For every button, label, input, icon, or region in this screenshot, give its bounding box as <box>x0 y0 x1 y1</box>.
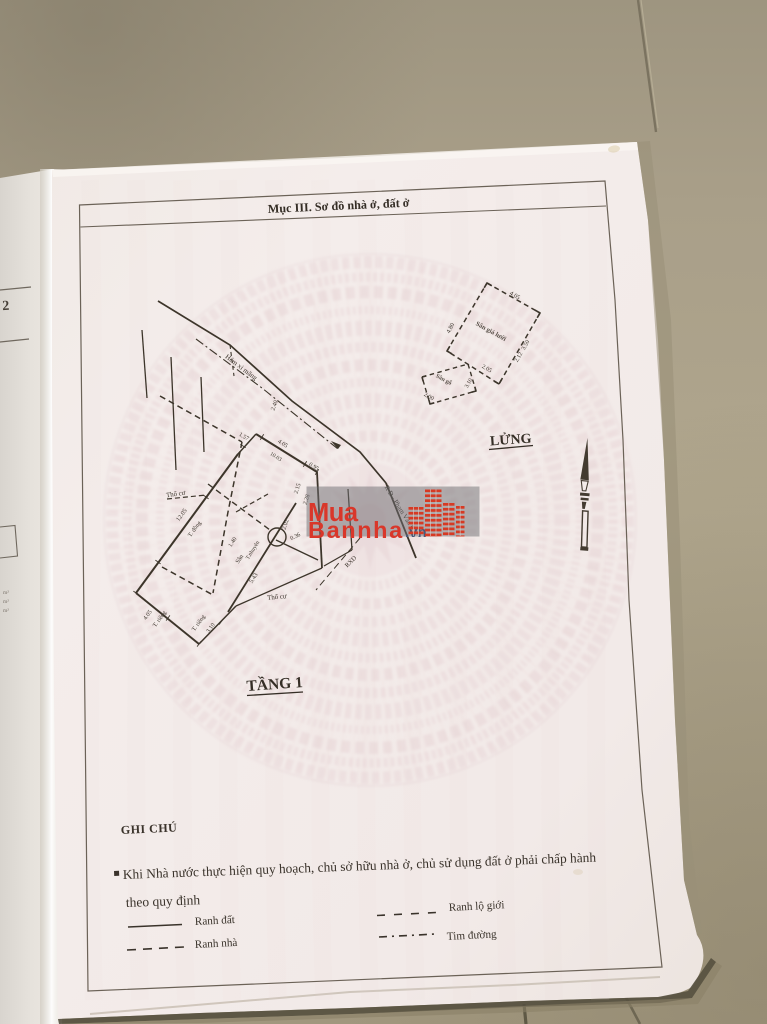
svg-text:Bannha: Bannha <box>308 517 404 543</box>
svg-text:Ranh nhà: Ranh nhà <box>195 937 238 951</box>
svg-text:Tim đường: Tim đường <box>447 928 498 943</box>
svg-text:GHI CHÚ: GHI CHÚ <box>121 820 178 837</box>
svg-text:m²: m² <box>3 590 9 596</box>
svg-text:theo quy định: theo quy định <box>126 892 201 910</box>
svg-text:m²: m² <box>3 608 9 614</box>
svg-text:Ranh đất: Ranh đất <box>195 914 237 928</box>
svg-text:m²: m² <box>3 599 9 605</box>
svg-text:2: 2 <box>2 299 10 314</box>
